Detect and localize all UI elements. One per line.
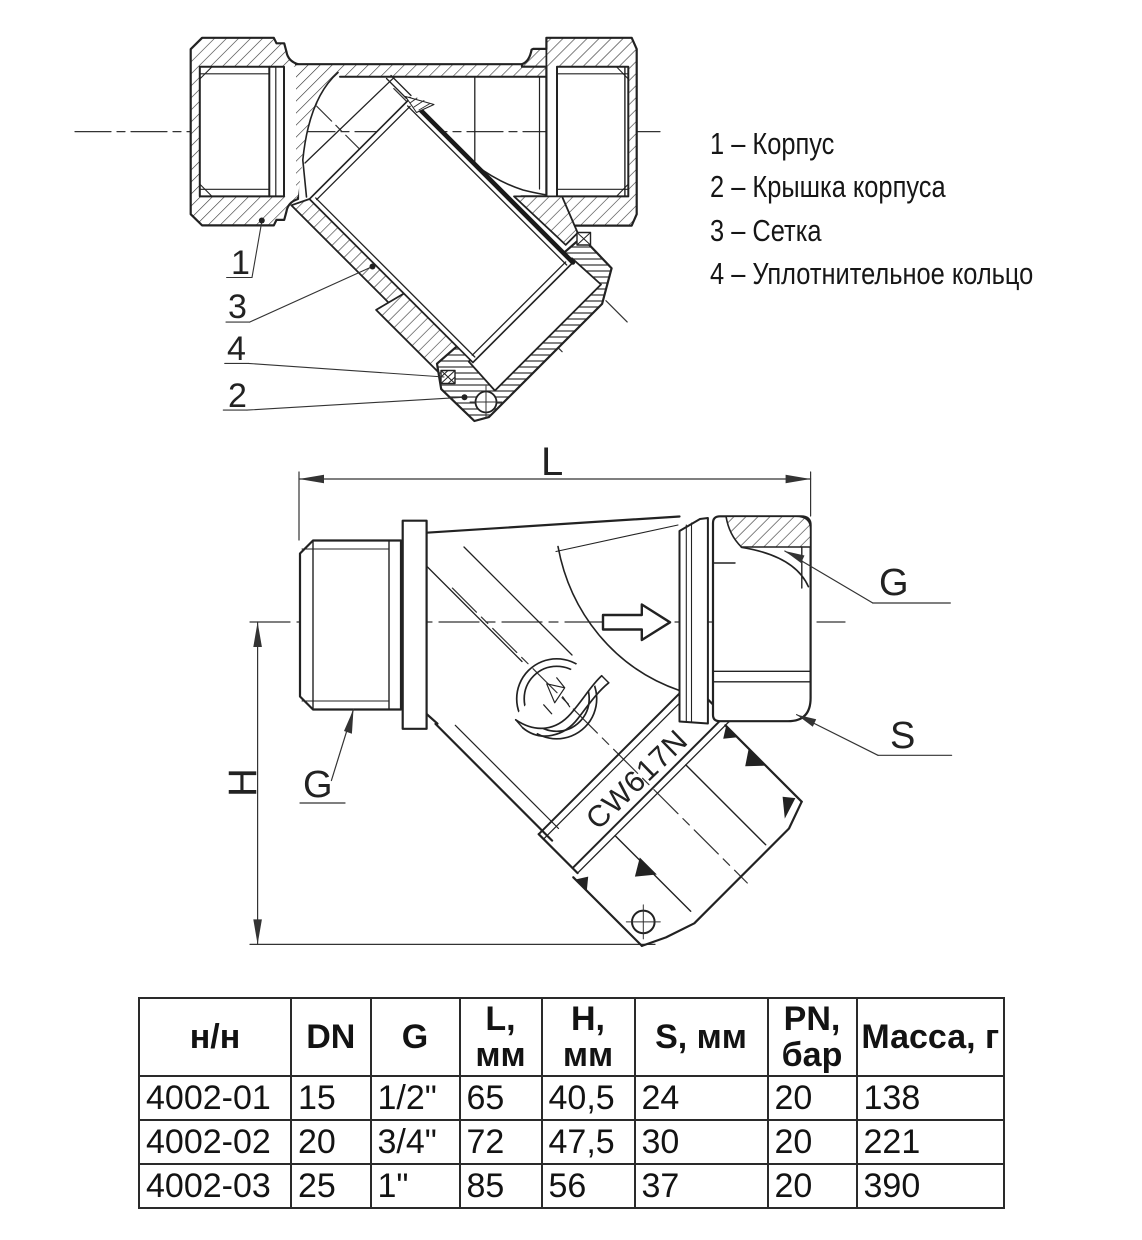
svg-text:G: G (879, 562, 909, 604)
svg-text:CW617N: CW617N (580, 724, 695, 836)
svg-text:H: H (221, 768, 265, 797)
svg-text:2: 2 (228, 377, 247, 415)
svg-text:G: G (303, 764, 333, 806)
svg-text:4: 4 (227, 330, 246, 368)
svg-text:S: S (890, 715, 915, 757)
svg-text:L: L (541, 440, 563, 484)
svg-text:1: 1 (231, 244, 250, 282)
svg-text:3: 3 (228, 288, 247, 326)
